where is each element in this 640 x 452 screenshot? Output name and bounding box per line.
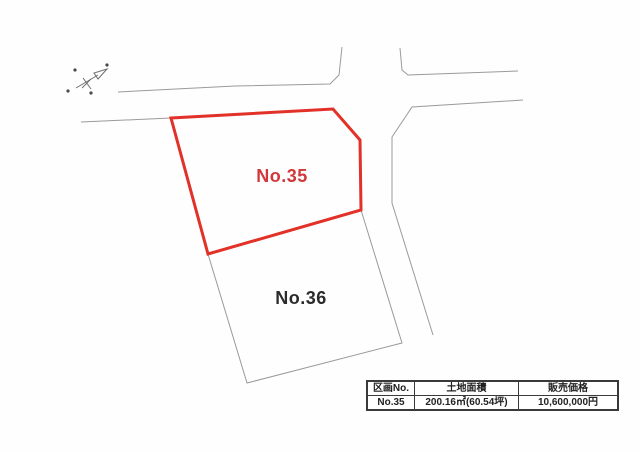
road-edge-line — [392, 100, 523, 335]
table-header-land-area: 土地面積 — [415, 381, 519, 396]
plot-36-label: No.36 — [275, 288, 327, 308]
road-edge-line — [81, 118, 171, 122]
plot-35-label: No.35 — [256, 166, 308, 186]
price-table-head: 区画No. 土地面積 販売価格 — [367, 381, 618, 396]
north-arrow-shaft — [76, 75, 98, 88]
table-row: No.35 200.16㎡(60.54坪) 10,600,000円 — [367, 396, 618, 411]
road-edge-line — [118, 47, 342, 92]
table-header-plot-no: 区画No. — [367, 381, 415, 396]
price-table: 区画No. 土地面積 販売価格 No.35 200.16㎡(60.54坪) 10… — [366, 380, 619, 411]
north-arrow-icon — [66, 63, 108, 94]
compass-dot — [105, 63, 108, 66]
table-cell-land-area: 200.16㎡(60.54坪) — [415, 396, 519, 411]
road-edge-line — [400, 48, 518, 75]
table-header-sale-price: 販売価格 — [519, 381, 619, 396]
table-cell-plot-no: No.35 — [367, 396, 415, 411]
compass-dot — [73, 68, 76, 71]
north-arrow-head — [94, 69, 107, 79]
price-table-body: No.35 200.16㎡(60.54坪) 10,600,000円 — [367, 396, 618, 411]
compass-dot — [66, 89, 69, 92]
compass-dot — [89, 91, 92, 94]
table-cell-sale-price: 10,600,000円 — [519, 396, 619, 411]
land-plot-diagram-page: No.35 No.36 区画No. 土地面積 販売価格 No.35 200.16… — [0, 0, 640, 452]
table-header-row: 区画No. 土地面積 販売価格 — [367, 381, 618, 396]
